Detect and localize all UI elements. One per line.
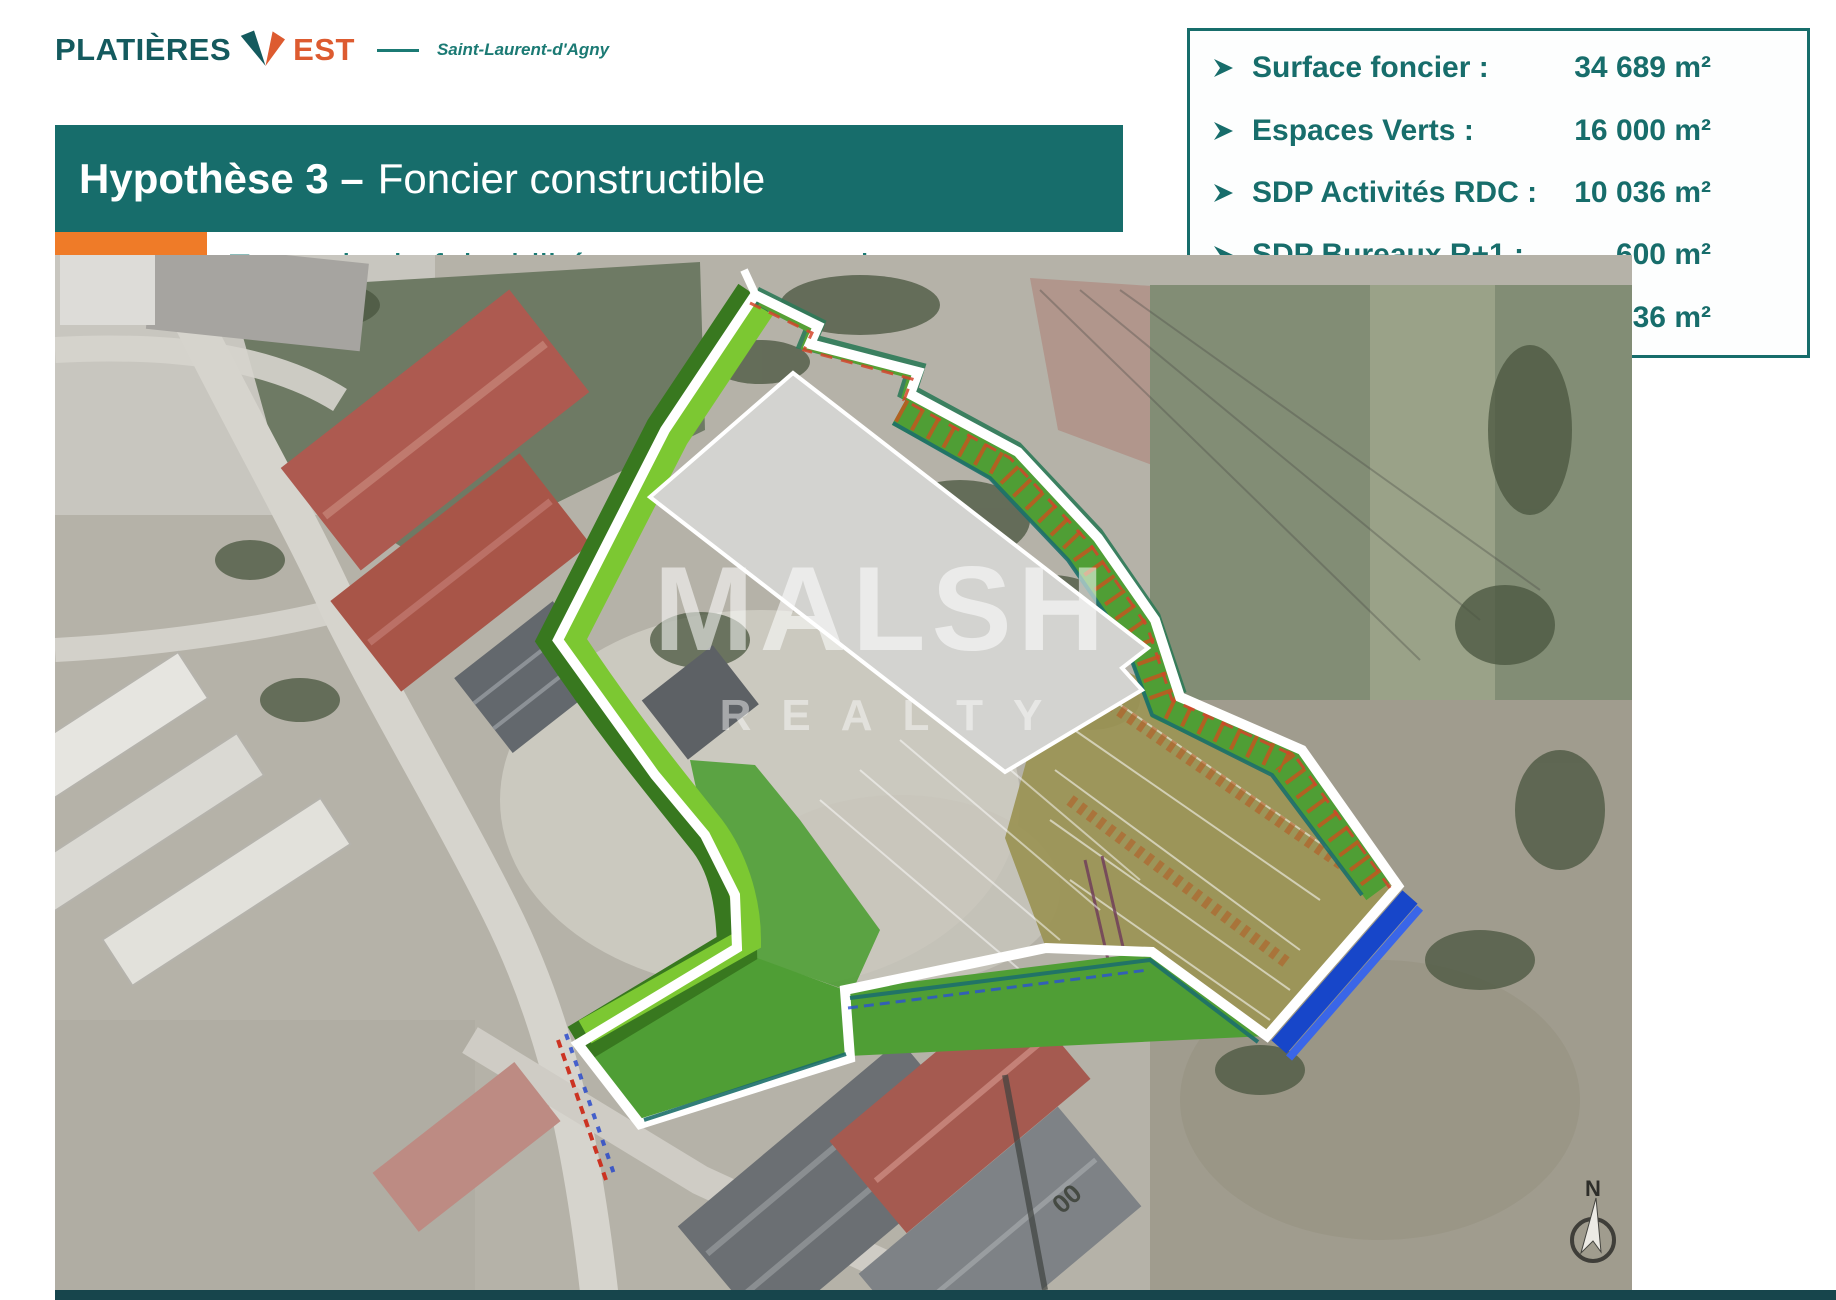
metric-label: Espaces Verts : [1252, 114, 1474, 148]
metric-row-surface-foncier: Surface foncier : 34 689 m² [1190, 51, 1807, 85]
watermark-line2: REALTY [720, 691, 1073, 740]
brand-arrow-icon [239, 30, 285, 70]
brand-logo: PLATIÈRES EST Saint-Laurent-d'Agny [55, 30, 609, 70]
metric-value: 10 036 m² [1574, 176, 1789, 210]
aerial-map: 00 MALSH REALTY N [55, 255, 1632, 1292]
metric-row-espaces-verts: Espaces Verts : 16 000 m² [1190, 114, 1807, 148]
title-bold: Hypothèse 3 – [79, 155, 364, 203]
brand-name: PLATIÈRES [55, 32, 231, 68]
watermark-line1: MALSH [654, 542, 1111, 676]
arrow-bullet-icon [1210, 55, 1236, 81]
arrow-bullet-icon [1210, 118, 1236, 144]
slide-page: PLATIÈRES EST Saint-Laurent-d'Agny Hypot… [0, 0, 1836, 1300]
metric-value: 34 689 m² [1574, 51, 1789, 85]
compass-north-label: N [1585, 1176, 1601, 1201]
arrow-bullet-icon [1210, 180, 1236, 206]
brand-location: Saint-Laurent-d'Agny [437, 40, 609, 60]
footer-strip [55, 1290, 1836, 1300]
metric-row-sdp-activites: SDP Activités RDC : 10 036 m² [1190, 176, 1807, 210]
metric-value: 600 m² [1616, 238, 1789, 272]
title-regular: Foncier constructible [378, 155, 766, 203]
metric-label: Surface foncier : [1252, 51, 1489, 85]
brand-suffix: EST [293, 32, 355, 68]
logo-separator [377, 49, 419, 52]
title-banner: Hypothèse 3 – Foncier constructible [55, 125, 1123, 232]
metric-label: SDP Activités RDC : [1252, 176, 1537, 210]
aerial-map-canvas: 00 MALSH REALTY N [55, 255, 1632, 1292]
metric-value: 16 000 m² [1574, 114, 1789, 148]
